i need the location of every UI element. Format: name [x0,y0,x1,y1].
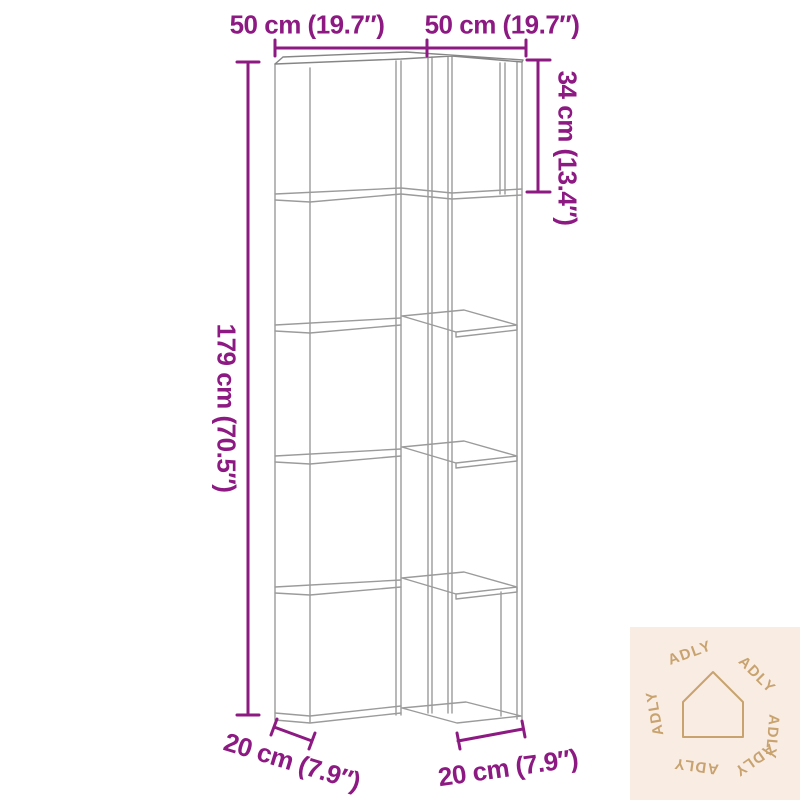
wireframe-bottom [275,702,521,723]
wireframe-shelf-1 [275,188,522,202]
dim-line-right [527,60,550,192]
dim-label-top-right: 50 cm (19.7″) [425,10,580,41]
dim-label-left-179: 179 cm (70.5″) [211,324,242,493]
dim-label-right-34: 34 cm (13.4″) [552,71,583,226]
dim-label-top-left: 50 cm (19.7″) [230,10,385,41]
wireframe-top [275,52,523,64]
wireframe-verticals [275,57,522,722]
brand-watermark: ADLY ADLY ADLY ADLY ADLY ADLY [630,627,800,800]
dimension-lines [237,40,550,749]
dim-line-top [275,40,526,56]
bookshelf-wireframe [275,52,523,723]
dimension-diagram: 50 cm (19.7″) 50 cm (19.7″) 34 cm (13.4″… [0,0,800,800]
dim-line-bottom-right [457,721,525,749]
